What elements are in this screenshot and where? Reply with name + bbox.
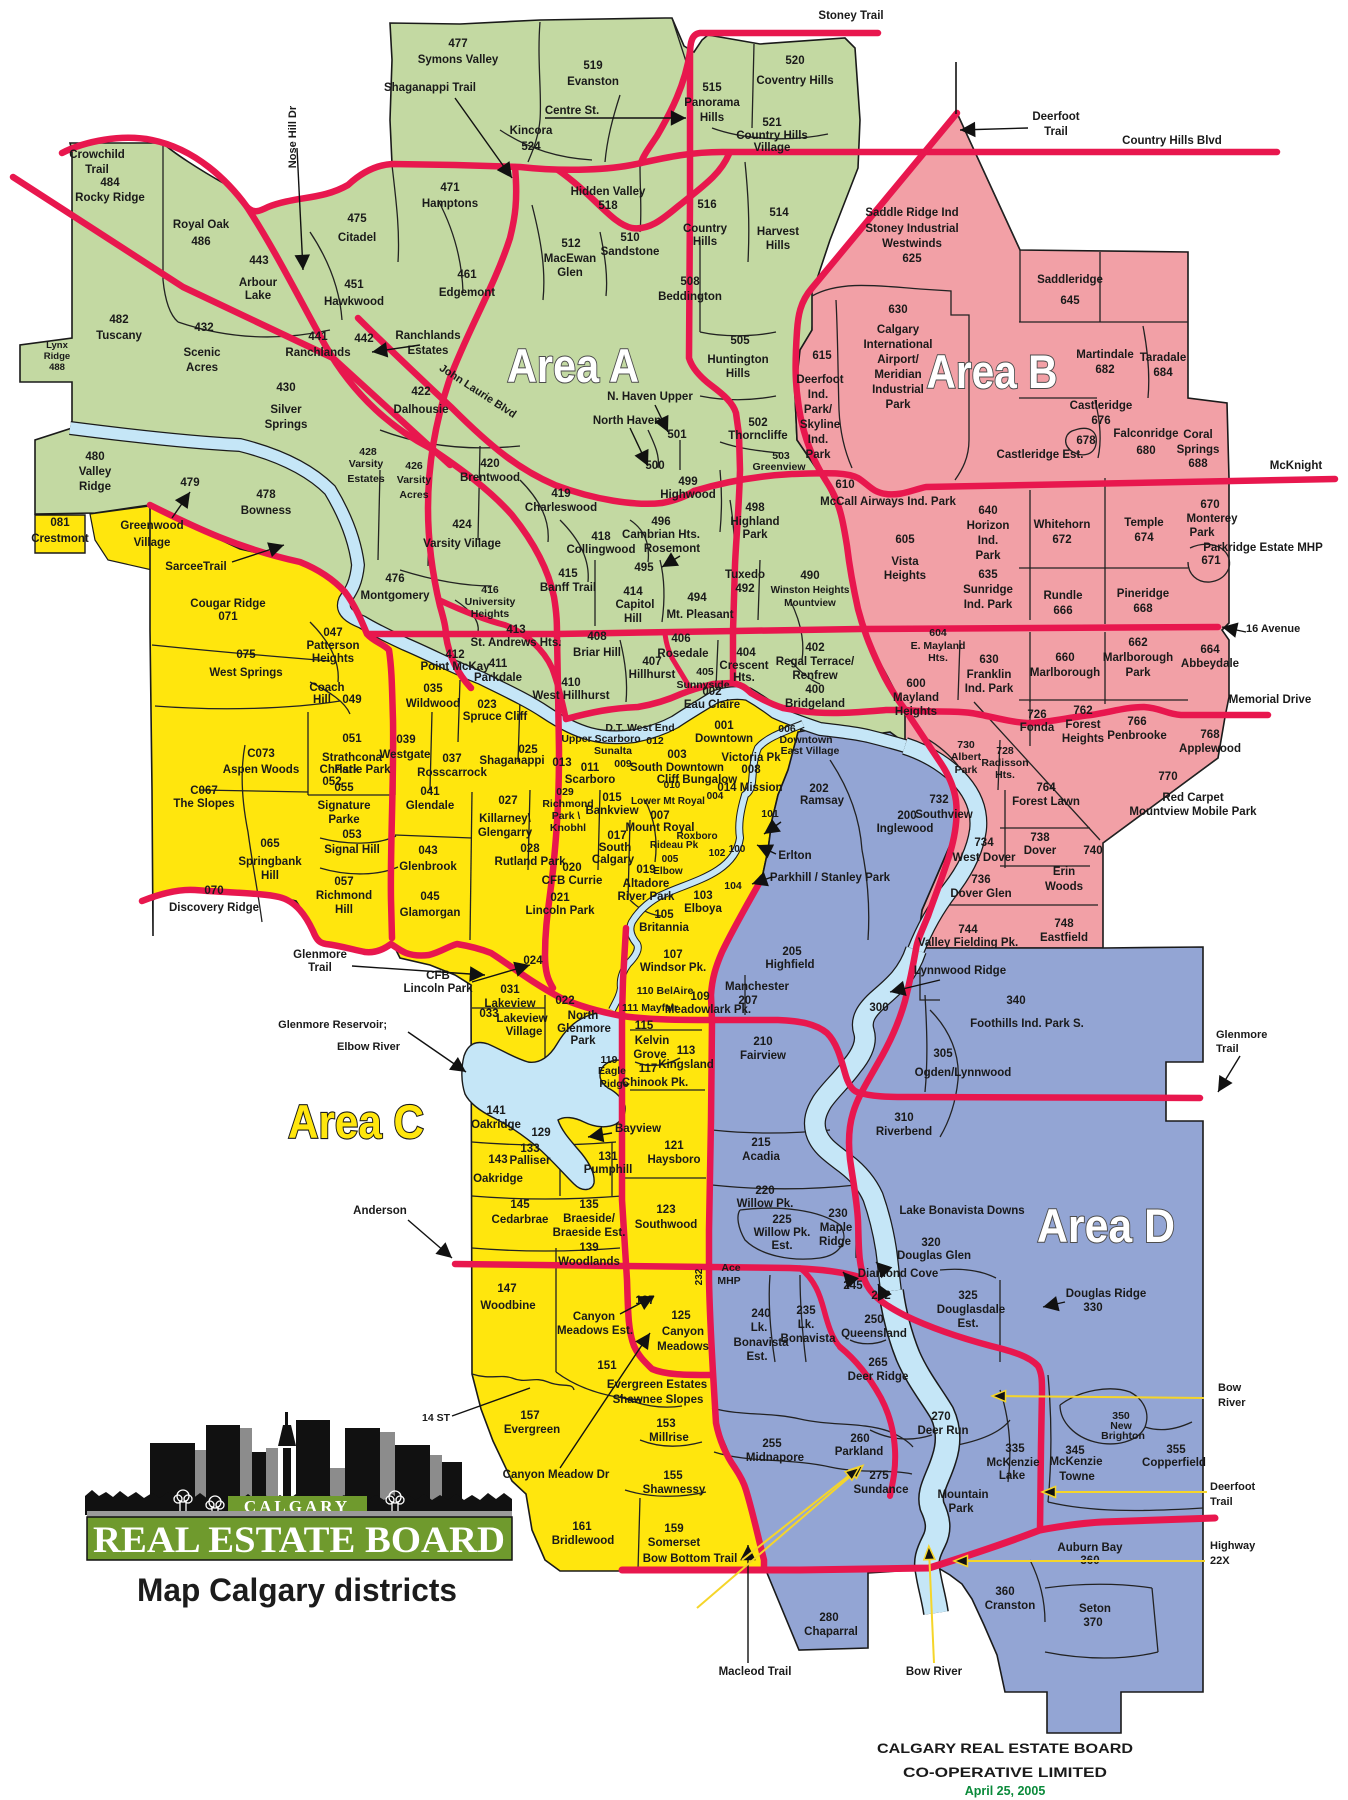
svg-text:235: 235 [796, 1305, 816, 1317]
svg-text:Highwood: Highwood [660, 489, 716, 501]
svg-text:Stoney Trail: Stoney Trail [818, 10, 883, 22]
svg-text:674: 674 [1134, 532, 1154, 544]
svg-text:Est.: Est. [746, 1351, 767, 1363]
svg-text:255: 255 [762, 1438, 782, 1450]
svg-text:330: 330 [1083, 1302, 1102, 1314]
svg-text:Fairview: Fairview [740, 1050, 786, 1062]
svg-text:Knobhl: Knobhl [550, 822, 586, 834]
svg-text:Bonavista: Bonavista [781, 1333, 837, 1345]
svg-text:424: 424 [452, 519, 472, 531]
svg-text:Signature: Signature [317, 800, 370, 812]
svg-text:Cedarbrae: Cedarbrae [492, 1214, 549, 1226]
svg-text:684: 684 [1153, 367, 1173, 379]
svg-text:St. Andrews Hts.: St. Andrews Hts. [471, 637, 562, 649]
svg-text:Trail: Trail [1044, 126, 1068, 138]
svg-text:Est.: Est. [771, 1240, 792, 1252]
svg-text:488: 488 [49, 362, 65, 373]
svg-text:645: 645 [1060, 295, 1080, 307]
svg-text:Mountain: Mountain [937, 1489, 988, 1501]
svg-text:630: 630 [888, 304, 907, 316]
svg-text:REAL ESTATE BOARD: REAL ESTATE BOARD [93, 1520, 505, 1561]
svg-text:250: 250 [864, 1314, 883, 1326]
svg-text:Temple: Temple [1124, 517, 1163, 529]
svg-text:Elboya: Elboya [684, 903, 722, 915]
svg-text:Penbrooke: Penbrooke [1107, 730, 1166, 742]
svg-text:Hawkwood: Hawkwood [324, 296, 384, 308]
svg-text:Eastfield: Eastfield [1040, 932, 1088, 944]
svg-text:133: 133 [520, 1143, 539, 1155]
svg-text:Varsity Village: Varsity Village [423, 538, 501, 550]
svg-text:045: 045 [420, 891, 440, 903]
svg-text:Lynx: Lynx [46, 340, 69, 351]
svg-text:495: 495 [634, 562, 654, 574]
svg-text:Springbank: Springbank [238, 856, 302, 868]
svg-text:Bow Bottom Trail: Bow Bottom Trail [643, 1553, 738, 1565]
svg-text:Cambrian Hts.: Cambrian Hts. [622, 529, 700, 541]
svg-text:205: 205 [782, 946, 802, 958]
svg-text:515: 515 [702, 82, 722, 94]
svg-text:Fonda: Fonda [1020, 722, 1055, 734]
svg-text:Hill: Hill [624, 613, 642, 625]
svg-text:023: 023 [477, 699, 496, 711]
svg-text:Deerfoot: Deerfoot [1032, 111, 1079, 123]
svg-text:Glen: Glen [557, 267, 583, 279]
svg-text:479: 479 [180, 477, 199, 489]
svg-text:426: 426 [405, 460, 423, 472]
svg-text:Southview: Southview [915, 809, 973, 821]
svg-text:442: 442 [354, 333, 373, 345]
svg-text:420: 420 [480, 458, 499, 470]
svg-text:730: 730 [957, 739, 975, 751]
svg-text:104: 104 [724, 880, 742, 892]
svg-text:Applewood: Applewood [1179, 743, 1241, 755]
svg-text:141: 141 [486, 1105, 506, 1117]
svg-text:021: 021 [550, 892, 570, 904]
svg-text:Crowchild: Crowchild [69, 149, 125, 161]
svg-text:SarceeTrail: SarceeTrail [165, 561, 226, 573]
svg-text:Park: Park [806, 449, 832, 461]
svg-text:640: 640 [978, 505, 997, 517]
svg-text:McKnight: McKnight [1270, 460, 1323, 472]
svg-text:Millrise: Millrise [649, 1432, 689, 1444]
svg-text:Charleswood: Charleswood [525, 502, 597, 514]
svg-text:615: 615 [812, 350, 832, 362]
svg-text:031: 031 [500, 984, 520, 996]
svg-text:Citadel: Citadel [338, 232, 376, 244]
svg-text:Park: Park [1190, 527, 1216, 539]
svg-text:107: 107 [663, 949, 682, 961]
svg-text:008: 008 [741, 764, 761, 776]
svg-text:413: 413 [506, 624, 525, 636]
svg-text:020: 020 [562, 862, 581, 874]
svg-text:300: 300 [869, 1002, 888, 1014]
svg-text:D.T. West End: D.T. West End [605, 722, 674, 734]
svg-text:Brighton: Brighton [1101, 1430, 1145, 1442]
svg-text:Glenmore: Glenmore [557, 1023, 611, 1035]
svg-text:Area B: Area B [927, 345, 1058, 398]
svg-text:Elbow River: Elbow River [337, 1041, 401, 1053]
svg-text:Calgary: Calgary [592, 854, 635, 866]
svg-text:225: 225 [772, 1214, 792, 1226]
svg-text:Hills: Hills [766, 240, 790, 252]
svg-text:Pumphill: Pumphill [584, 1164, 633, 1176]
svg-text:Deerfoot: Deerfoot [1210, 1481, 1256, 1493]
svg-text:422: 422 [411, 386, 430, 398]
svg-text:Hills: Hills [693, 236, 717, 248]
svg-text:Park: Park [886, 399, 912, 411]
svg-text:Symons Valley: Symons Valley [418, 54, 499, 66]
svg-text:Abbeydale: Abbeydale [1181, 658, 1239, 670]
svg-text:Queensland: Queensland [841, 1328, 907, 1340]
svg-text:Oakridge: Oakridge [473, 1173, 523, 1185]
svg-text:Stoney Industrial: Stoney Industrial [865, 223, 958, 235]
svg-text:Lynnwood Ridge: Lynnwood Ridge [914, 965, 1006, 977]
svg-text:484: 484 [100, 177, 120, 189]
svg-text:524: 524 [521, 141, 541, 153]
svg-text:Whitehorn: Whitehorn [1034, 519, 1091, 531]
svg-text:498: 498 [745, 502, 765, 514]
svg-text:662: 662 [1128, 637, 1147, 649]
svg-text:310: 310 [894, 1112, 913, 1124]
svg-text:Springs: Springs [265, 419, 308, 431]
svg-text:Trail: Trail [308, 962, 332, 974]
svg-text:668: 668 [1133, 603, 1153, 615]
svg-text:635: 635 [978, 569, 998, 581]
svg-text:Meridian: Meridian [874, 369, 921, 381]
svg-text:490: 490 [800, 570, 819, 582]
svg-text:049: 049 [342, 694, 361, 706]
svg-text:The Slopes: The Slopes [173, 798, 234, 810]
svg-text:402: 402 [805, 642, 824, 654]
svg-text:Memorial Drive: Memorial Drive [1229, 694, 1311, 706]
svg-text:Scarboro: Scarboro [565, 774, 616, 786]
svg-text:Hillhurst: Hillhurst [629, 669, 676, 681]
svg-text:Lower Mt Royal: Lower Mt Royal [631, 796, 705, 807]
svg-text:736: 736 [971, 874, 990, 886]
svg-text:Valley Fielding Pk.: Valley Fielding Pk. [918, 937, 1018, 949]
svg-text:666: 666 [1053, 605, 1072, 617]
svg-text:Highfield: Highfield [765, 959, 814, 971]
svg-text:135: 135 [579, 1199, 599, 1211]
svg-text:Albert: Albert [951, 751, 982, 763]
svg-text:Lake: Lake [999, 1470, 1025, 1482]
svg-text:210: 210 [753, 1036, 772, 1048]
svg-text:Canyon Meadow Dr: Canyon Meadow Dr [503, 1469, 610, 1481]
svg-text:Park: Park [976, 550, 1002, 562]
svg-text:415: 415 [558, 568, 578, 580]
svg-text:105: 105 [654, 909, 674, 921]
svg-text:Upper Scarboro: Upper Scarboro [561, 733, 640, 745]
svg-text:121: 121 [664, 1140, 684, 1152]
svg-text:670: 670 [1200, 499, 1219, 511]
svg-text:MHP: MHP [717, 1275, 740, 1287]
svg-text:Hills: Hills [726, 368, 750, 380]
svg-text:Strathcona: Strathcona [322, 752, 383, 764]
svg-text:726: 726 [1027, 709, 1046, 721]
svg-text:Midnapore: Midnapore [746, 1452, 804, 1464]
svg-text:117: 117 [639, 1063, 658, 1075]
svg-text:CFB Currie: CFB Currie [542, 875, 603, 887]
svg-text:West Dover: West Dover [952, 852, 1016, 864]
svg-text:Martindale: Martindale [1076, 349, 1134, 361]
svg-text:041: 041 [420, 786, 440, 798]
svg-text:Kingsland: Kingsland [658, 1059, 714, 1071]
svg-text:207: 207 [738, 995, 757, 1007]
svg-text:053: 053 [342, 829, 361, 841]
svg-text:Kelvin: Kelvin [635, 1035, 670, 1047]
svg-text:C067: C067 [190, 785, 218, 797]
svg-text:Shaganappi Trail: Shaganappi Trail [384, 82, 476, 94]
svg-text:Country Hills: Country Hills [736, 130, 808, 142]
svg-text:Park: Park [949, 1503, 975, 1515]
svg-text:Haysboro: Haysboro [647, 1154, 700, 1166]
svg-text:043: 043 [418, 845, 437, 857]
svg-text:003: 003 [667, 749, 686, 761]
svg-text:Oakridge: Oakridge [471, 1119, 521, 1131]
svg-text:671: 671 [1201, 555, 1221, 567]
svg-text:109: 109 [690, 991, 709, 1003]
svg-text:147: 147 [497, 1283, 516, 1295]
svg-text:153: 153 [656, 1418, 675, 1430]
svg-text:055: 055 [334, 782, 354, 794]
svg-text:Glengarry: Glengarry [478, 827, 533, 839]
svg-text:Ace: Ace [721, 1262, 740, 1274]
svg-text:605: 605 [895, 534, 915, 546]
svg-text:688: 688 [1188, 458, 1208, 470]
svg-text:Heights: Heights [471, 608, 510, 620]
svg-text:102: 102 [709, 848, 726, 859]
svg-text:Marlborough: Marlborough [1030, 667, 1100, 679]
svg-text:Hill: Hill [313, 694, 331, 706]
svg-text:MacEwan: MacEwan [544, 253, 596, 265]
svg-text:Crestmont: Crestmont [31, 533, 89, 545]
svg-text:Sunalta: Sunalta [594, 745, 632, 757]
svg-text:Panorama: Panorama [684, 97, 740, 109]
svg-text:Parkridge Estate MHP: Parkridge Estate MHP [1203, 542, 1323, 554]
svg-text:Lake: Lake [245, 290, 271, 302]
svg-text:240: 240 [751, 1308, 770, 1320]
svg-text:100: 100 [729, 844, 746, 855]
svg-text:Manchester: Manchester [725, 981, 789, 993]
svg-text:Renfrew: Renfrew [792, 670, 837, 682]
svg-text:Beddington: Beddington [658, 291, 722, 303]
svg-text:035: 035 [423, 683, 443, 695]
svg-text:Ranchlands: Ranchlands [395, 330, 460, 342]
svg-text:Greenwood: Greenwood [120, 520, 183, 532]
svg-text:Bridgeland: Bridgeland [785, 698, 845, 710]
svg-text:Auburn Bay: Auburn Bay [1057, 1542, 1123, 1554]
svg-text:728: 728 [996, 745, 1014, 757]
svg-text:508: 508 [680, 276, 700, 288]
svg-text:Coral: Coral [1183, 429, 1212, 441]
svg-text:Ridge: Ridge [44, 351, 70, 362]
svg-text:518: 518 [598, 200, 618, 212]
svg-text:Area A: Area A [507, 339, 639, 392]
svg-text:Downtown: Downtown [695, 733, 753, 745]
svg-text:604: 604 [929, 627, 947, 639]
svg-text:Hts.: Hts. [995, 769, 1015, 781]
svg-text:010: 010 [664, 780, 681, 791]
svg-text:Victoria Pk: Victoria Pk [721, 752, 781, 764]
svg-text:Southwood: Southwood [635, 1219, 698, 1231]
svg-text:Shawnee Slopes: Shawnee Slopes [613, 1394, 704, 1406]
svg-text:16 Avenue: 16 Avenue [1246, 623, 1300, 635]
svg-text:14 ST: 14 ST [422, 1412, 451, 1424]
svg-text:764: 764 [1036, 782, 1056, 794]
svg-text:028: 028 [520, 843, 540, 855]
svg-text:McCall Airways Ind. Park: McCall Airways Ind. Park [820, 496, 956, 508]
svg-text:Silver: Silver [270, 404, 302, 416]
svg-text:East Village: East Village [781, 745, 840, 757]
svg-text:502: 502 [748, 417, 767, 429]
svg-text:007: 007 [650, 810, 669, 822]
svg-text:Brentwood: Brentwood [460, 472, 520, 484]
svg-text:Christie Park: Christie Park [320, 764, 392, 776]
svg-text:Highway: Highway [1210, 1540, 1256, 1552]
svg-text:410: 410 [561, 677, 580, 689]
svg-text:305: 305 [933, 1048, 953, 1060]
svg-text:738: 738 [1030, 832, 1050, 844]
svg-text:678: 678 [1076, 435, 1096, 447]
svg-text:Map Calgary districts: Map Calgary districts [137, 1572, 457, 1608]
svg-text:432: 432 [194, 322, 213, 334]
svg-text:Acres: Acres [399, 489, 428, 501]
svg-text:Pineridge: Pineridge [1117, 588, 1169, 600]
svg-text:West Hillhurst: West Hillhurst [532, 690, 609, 702]
svg-text:471: 471 [440, 182, 460, 194]
svg-text:Hts.: Hts. [928, 652, 948, 664]
svg-text:C073: C073 [247, 748, 275, 760]
svg-text:Lakeview: Lakeview [496, 1013, 547, 1025]
svg-text:012: 012 [646, 735, 664, 747]
svg-text:510: 510 [620, 232, 639, 244]
svg-text:Kincora: Kincora [510, 125, 553, 137]
svg-text:Briar Hill: Briar Hill [573, 647, 621, 659]
svg-text:Taradale: Taradale [1140, 352, 1186, 364]
svg-text:University: University [465, 596, 516, 608]
svg-text:Ind.: Ind. [808, 434, 828, 446]
svg-text:325: 325 [958, 1290, 978, 1302]
svg-text:275: 275 [869, 1470, 889, 1482]
svg-text:400: 400 [805, 684, 824, 696]
svg-text:748: 748 [1054, 918, 1074, 930]
svg-text:672: 672 [1052, 534, 1071, 546]
svg-text:419: 419 [551, 488, 570, 500]
svg-text:145: 145 [510, 1199, 530, 1211]
svg-text:416: 416 [481, 584, 499, 596]
svg-text:Woodlands: Woodlands [558, 1256, 620, 1268]
svg-text:Sunridge: Sunridge [963, 584, 1013, 596]
svg-text:001: 001 [714, 720, 734, 732]
svg-text:Somerset: Somerset [648, 1537, 701, 1549]
svg-text:McKenzie: McKenzie [1049, 1456, 1102, 1468]
svg-text:Coventry Hills: Coventry Hills [756, 75, 833, 87]
svg-text:Falconridge: Falconridge [1113, 428, 1178, 440]
svg-text:014 Mission: 014 Mission [717, 782, 782, 794]
svg-text:161: 161 [572, 1521, 592, 1533]
svg-text:770: 770 [1158, 771, 1177, 783]
svg-text:480: 480 [85, 451, 104, 463]
svg-text:428: 428 [359, 446, 377, 458]
svg-text:Seton: Seton [1079, 1603, 1111, 1615]
svg-text:732: 732 [929, 794, 948, 806]
svg-text:Village: Village [134, 537, 171, 549]
svg-text:Coach: Coach [309, 682, 344, 694]
svg-text:Trail: Trail [1216, 1043, 1239, 1055]
svg-text:Airport/: Airport/ [877, 354, 919, 366]
svg-text:Braeside Est.: Braeside Est. [553, 1227, 626, 1239]
svg-text:Forest: Forest [1065, 719, 1100, 731]
svg-text:Scenic: Scenic [183, 347, 221, 359]
svg-text:West Springs: West Springs [209, 667, 282, 679]
svg-text:Heights: Heights [895, 706, 937, 718]
svg-text:414: 414 [623, 586, 643, 598]
svg-text:029: 029 [556, 786, 574, 798]
svg-text:Radisson: Radisson [981, 757, 1028, 769]
svg-text:Canyon: Canyon [573, 1311, 615, 1323]
svg-text:451: 451 [344, 279, 364, 291]
svg-text:Sundance: Sundance [854, 1484, 909, 1496]
svg-text:Cougar Ridge: Cougar Ridge [190, 598, 265, 610]
svg-text:Erin: Erin [1053, 866, 1075, 878]
svg-text:408: 408 [587, 631, 607, 643]
svg-text:496: 496 [651, 516, 670, 528]
svg-text:430: 430 [276, 382, 295, 394]
svg-text:051: 051 [342, 733, 362, 745]
svg-text:Eau Claire: Eau Claire [684, 699, 740, 711]
svg-text:Royal Oak: Royal Oak [173, 219, 230, 231]
svg-text:River: River [1218, 1397, 1246, 1409]
svg-text:220: 220 [755, 1185, 774, 1197]
svg-text:Centre St.: Centre St. [545, 105, 599, 117]
svg-text:Anderson: Anderson [353, 1205, 407, 1217]
svg-text:Macleod Trail: Macleod Trail [719, 1666, 792, 1678]
svg-text:Parkhill / Stanley Park: Parkhill / Stanley Park [770, 872, 891, 884]
svg-text:260: 260 [850, 1433, 869, 1445]
svg-text:Trail: Trail [85, 164, 109, 176]
svg-text:477: 477 [448, 38, 467, 50]
svg-text:Rutland Park: Rutland Park [495, 856, 567, 868]
svg-text:North: North [568, 1010, 599, 1022]
svg-text:Bow: Bow [1218, 1382, 1242, 1394]
svg-text:Country: Country [683, 223, 728, 235]
svg-text:Montgomery: Montgomery [361, 590, 431, 602]
svg-text:April 25, 2005: April 25, 2005 [965, 1784, 1046, 1798]
svg-text:766: 766 [1127, 716, 1146, 728]
svg-text:Village: Village [754, 142, 791, 154]
svg-text:Hills: Hills [700, 112, 724, 124]
svg-text:Eagle: Eagle [598, 1065, 626, 1077]
svg-text:Deerfoot: Deerfoot [796, 374, 843, 386]
svg-text:CALGARY REAL ESTATE BOARD: CALGARY REAL ESTATE BOARD [877, 1741, 1133, 1756]
svg-text:Harvest: Harvest [757, 226, 799, 238]
svg-text:Castleridge: Castleridge [1070, 400, 1133, 412]
svg-text:Marlborough: Marlborough [1103, 652, 1173, 664]
svg-text:Springs: Springs [1177, 444, 1220, 456]
svg-text:512: 512 [561, 238, 580, 250]
svg-text:Palliser: Palliser [510, 1155, 551, 1167]
svg-text:Aspen Woods: Aspen Woods [223, 764, 299, 776]
svg-text:Woodbine: Woodbine [480, 1300, 535, 1312]
svg-text:Village: Village [506, 1026, 543, 1038]
svg-text:Altadore: Altadore [623, 878, 670, 890]
svg-text:232: 232 [694, 1268, 705, 1285]
svg-text:Lk.: Lk. [798, 1319, 815, 1331]
svg-text:005: 005 [662, 854, 679, 865]
svg-text:Westgate: Westgate [380, 749, 431, 761]
svg-text:Acres: Acres [186, 362, 218, 374]
svg-text:Shawnessy: Shawnessy [643, 1484, 706, 1496]
